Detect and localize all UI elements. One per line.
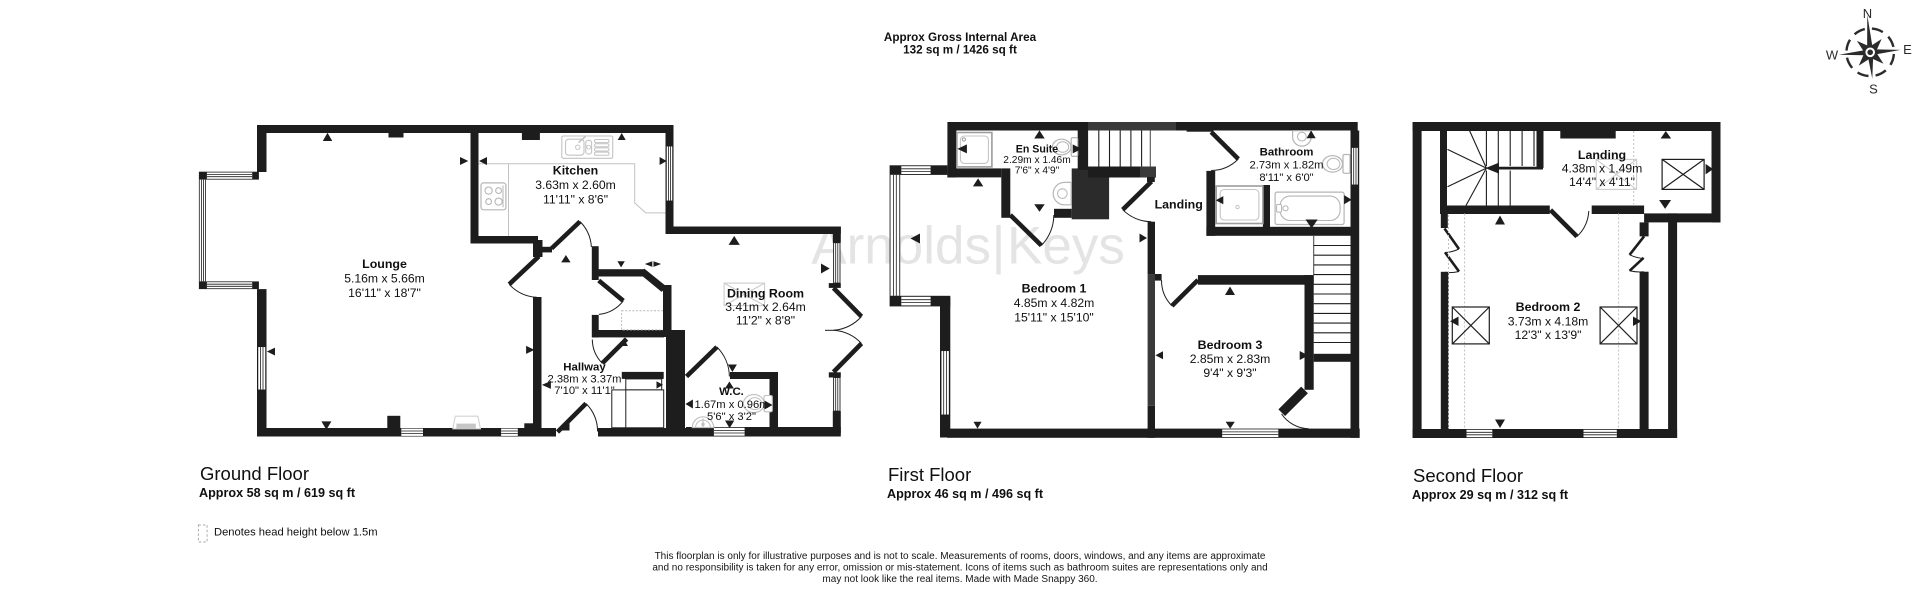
svg-text:Second Floor: Second Floor	[1413, 465, 1523, 486]
svg-text:7'6" x 4'9": 7'6" x 4'9"	[1015, 166, 1060, 177]
svg-text:2.85m x 2.83m: 2.85m x 2.83m	[1190, 352, 1271, 366]
svg-text:7'10" x 11'1": 7'10" x 11'1"	[554, 385, 615, 397]
svg-text:Keys: Keys	[1007, 217, 1125, 276]
svg-text:8'11" x 6'0": 8'11" x 6'0"	[1259, 172, 1313, 184]
svg-text:Bedroom 2: Bedroom 2	[1516, 300, 1581, 314]
svg-text:5.16m x 5.66m: 5.16m x 5.66m	[344, 272, 425, 286]
svg-text:1.67m x 0.96m: 1.67m x 0.96m	[695, 399, 769, 411]
svg-text:Approx 46 sq m / 496 sq ft: Approx 46 sq m / 496 sq ft	[887, 487, 1044, 501]
svg-text:Kitchen: Kitchen	[553, 164, 598, 178]
svg-text:may not look like the real ite: may not look like the real items. Made w…	[822, 574, 1097, 585]
svg-text:4.85m x 4.82m: 4.85m x 4.82m	[1014, 296, 1095, 310]
svg-text:Denotes head height below 1.5m: Denotes head height below 1.5m	[214, 527, 378, 539]
svg-text:132 sq m / 1426 sq ft: 132 sq m / 1426 sq ft	[903, 44, 1017, 57]
svg-text:This floorplan is only for ill: This floorplan is only for illustrative …	[655, 551, 1266, 562]
svg-text:Approx Gross Internal Area: Approx Gross Internal Area	[884, 31, 1037, 44]
svg-text:|: |	[992, 217, 1006, 276]
svg-text:Bedroom 1: Bedroom 1	[1022, 282, 1087, 296]
svg-text:Landing: Landing	[1578, 148, 1626, 162]
svg-text:11'2" x 8'8": 11'2" x 8'8"	[736, 314, 795, 328]
svg-text:14'4" x 4'11": 14'4" x 4'11"	[1569, 175, 1635, 189]
svg-text:3.63m x 2.60m: 3.63m x 2.60m	[535, 178, 616, 192]
svg-text:3.41m x 2.64m: 3.41m x 2.64m	[725, 300, 806, 314]
svg-text:Ground Floor: Ground Floor	[200, 463, 309, 484]
svg-text:S: S	[1869, 82, 1878, 97]
svg-text:Approx 29 sq m / 312 sq ft: Approx 29 sq m / 312 sq ft	[1412, 488, 1569, 502]
svg-text:15'11" x 15'10": 15'11" x 15'10"	[1014, 311, 1094, 325]
svg-text:Hallway: Hallway	[563, 362, 606, 374]
svg-text:and no responsibility is taken: and no responsibility is taken for any e…	[652, 563, 1267, 574]
svg-text:3.73m x 4.18m: 3.73m x 4.18m	[1508, 315, 1589, 329]
svg-text:4.38m x 1.49m: 4.38m x 1.49m	[1562, 162, 1643, 176]
svg-text:N: N	[1863, 6, 1872, 21]
svg-text:Bedroom 3: Bedroom 3	[1198, 338, 1263, 352]
svg-text:2.73m x 1.82m: 2.73m x 1.82m	[1250, 160, 1324, 172]
svg-text:Bathroom: Bathroom	[1260, 147, 1314, 159]
svg-text:First Floor: First Floor	[888, 464, 971, 485]
svg-text:2.38m x 3.37m: 2.38m x 3.37m	[548, 374, 622, 386]
svg-text:Dining Room: Dining Room	[727, 287, 804, 301]
svg-text:9'4" x 9'3": 9'4" x 9'3"	[1203, 366, 1256, 380]
svg-text:Approx 58 sq m / 619 sq ft: Approx 58 sq m / 619 sq ft	[199, 486, 356, 500]
svg-text:En Suite: En Suite	[1016, 143, 1058, 155]
svg-text:Landing: Landing	[1155, 198, 1203, 212]
svg-text:E: E	[1903, 42, 1912, 57]
svg-text:12'3" x 13'9": 12'3" x 13'9"	[1515, 328, 1582, 342]
svg-text:16'11" x 18'7": 16'11" x 18'7"	[348, 286, 421, 300]
svg-text:2.29m x 1.46m: 2.29m x 1.46m	[1003, 155, 1070, 166]
svg-text:Lounge: Lounge	[362, 257, 407, 271]
svg-text:W: W	[1826, 48, 1839, 63]
svg-text:11'11" x 8'6": 11'11" x 8'6"	[543, 193, 608, 207]
